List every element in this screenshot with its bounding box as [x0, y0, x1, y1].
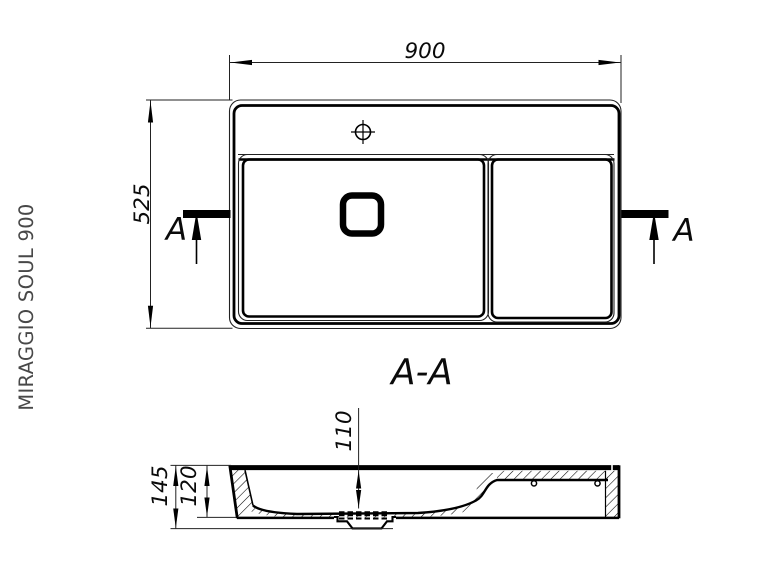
dim-label-basin-depth: 110: [332, 381, 358, 481]
section-view: [171, 408, 620, 529]
drawing-canvas: 900 525 A A A-A 110 145 120 MIRAGGIO SOU…: [0, 0, 770, 578]
section-title: A-A: [347, 352, 497, 393]
section-right-wall: [606, 465, 620, 518]
section-shelf-slab: [497, 471, 608, 486]
section-drain-trap: [334, 512, 396, 528]
technical-drawing: [0, 0, 770, 578]
dim-label-rim-height: 120: [177, 436, 203, 536]
top-view: [146, 55, 669, 329]
drain-icon: [343, 196, 381, 234]
basin-outline: [239, 155, 489, 321]
cut-letter-right: A: [654, 213, 714, 250]
faucet-hole-icon: [351, 120, 375, 144]
section-basin-shell: [249, 473, 498, 518]
dim-label-width: 900: [375, 39, 475, 64]
product-title: MIRAGGIO SOUL 900: [14, 187, 40, 427]
section-basin-profile: [253, 480, 608, 514]
dim-label-total-height: 145: [148, 436, 174, 536]
cut-letter-left: A: [147, 212, 207, 249]
shelf-outline: [488, 155, 614, 323]
sink-outline: [230, 100, 622, 329]
